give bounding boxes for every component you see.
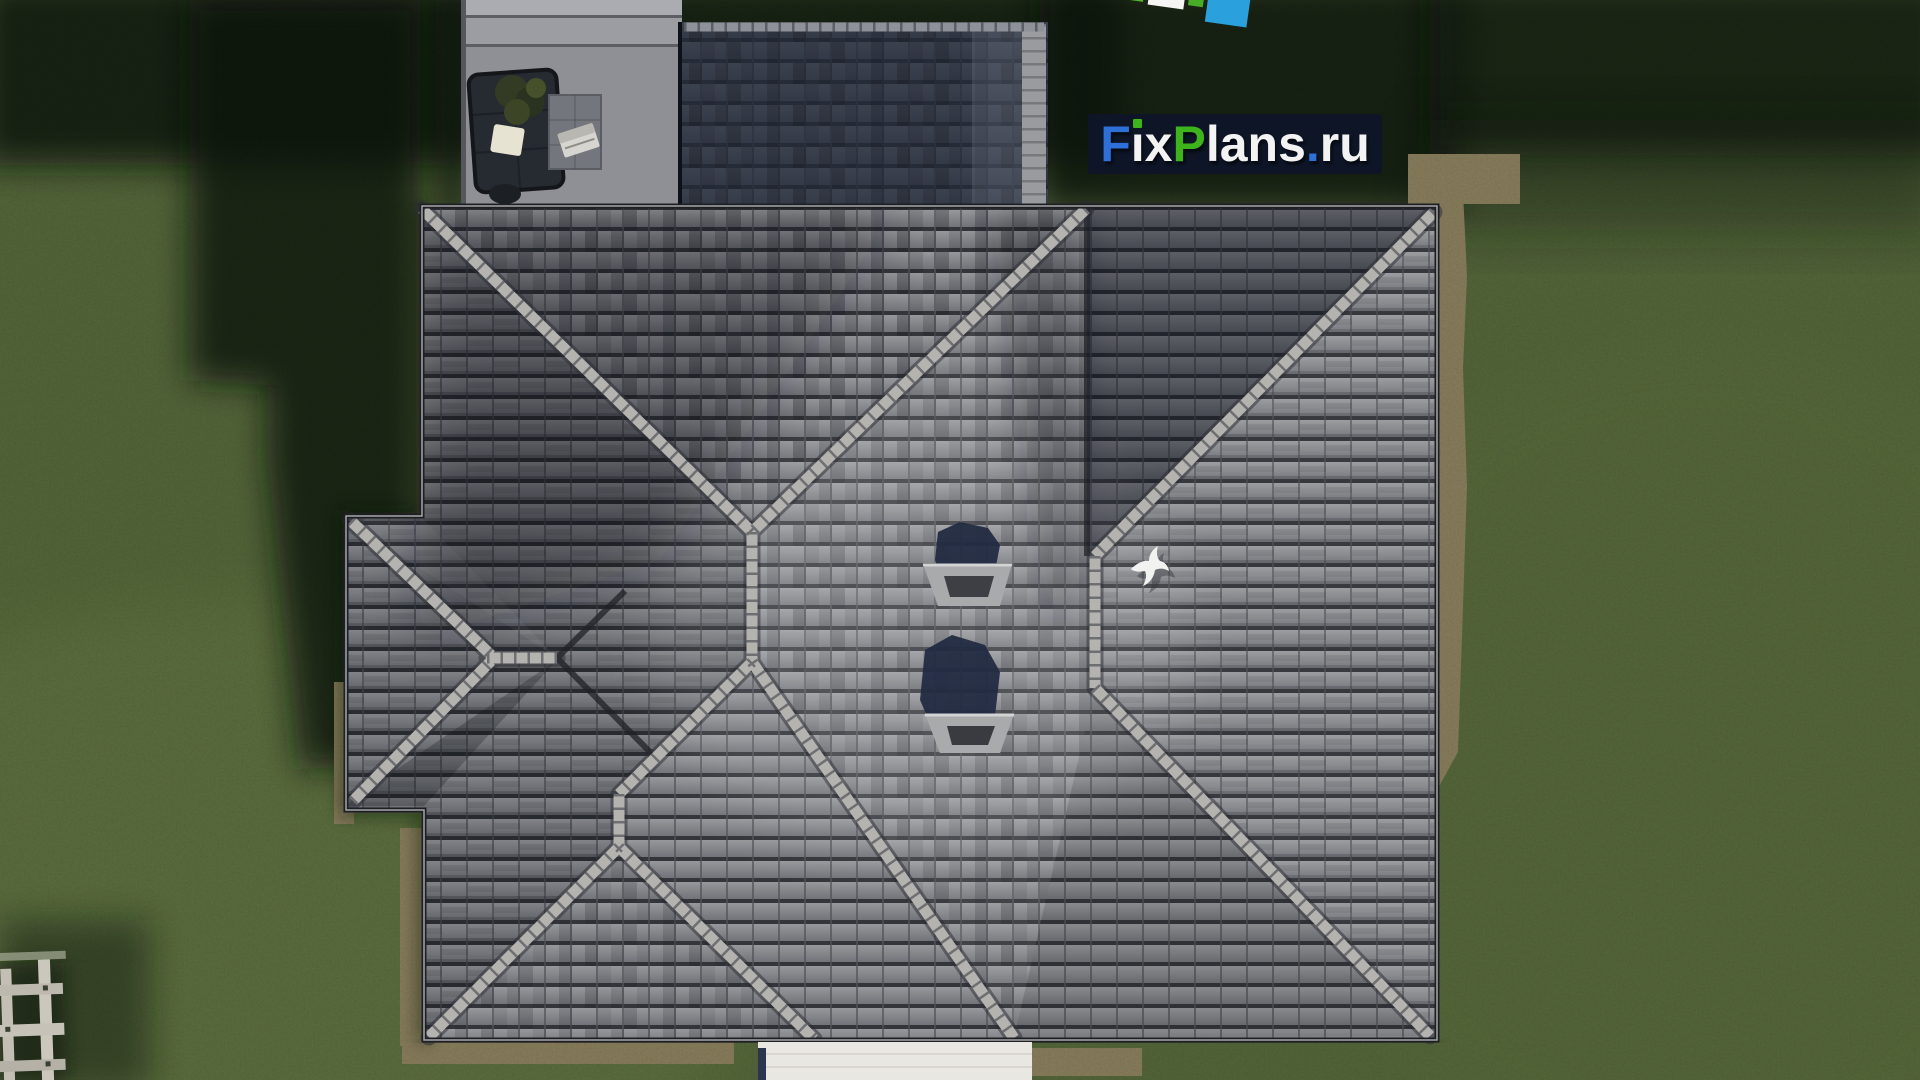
- aerial-house-render: FıxPlans.ru: [0, 0, 1920, 1080]
- pergola-bolt-3: [45, 1061, 50, 1066]
- white-walkway: [758, 1042, 1032, 1080]
- patio-step-1: [466, 0, 682, 16]
- main-roof: [346, 206, 1437, 1042]
- green-dot-icon: [1133, 119, 1142, 128]
- watermark-letter-i: ı: [1131, 114, 1145, 174]
- garage-lighter-columns: [972, 22, 1022, 204]
- patio-step-edge-1: [466, 15, 682, 18]
- patio-step-edge-2: [466, 44, 682, 47]
- ottoman: [489, 184, 521, 204]
- pergola-bolt-1: [43, 985, 48, 990]
- watermark-letter: .: [1306, 114, 1320, 174]
- watermark-logo: FıxPlans.ru: [1088, 114, 1382, 174]
- watermark-letter: x: [1145, 114, 1173, 174]
- roof-sunlit-patch: [650, 420, 1190, 860]
- walkway-slab: [758, 1042, 1032, 1080]
- garage-left-edge: [678, 22, 682, 204]
- watermark-letter: ru: [1320, 114, 1370, 174]
- watermark-letter: lans: [1206, 114, 1306, 174]
- sofa-cushion: [490, 124, 525, 157]
- pergola: [0, 951, 70, 1080]
- patio-step-2: [466, 16, 682, 46]
- walkway-navy-edge: [758, 1048, 766, 1080]
- watermark-letter: F: [1100, 114, 1131, 174]
- render-canvas: [0, 0, 1920, 1080]
- patio-left-border: [461, 0, 466, 204]
- garage-roof: [678, 22, 1048, 204]
- watermark-letter: P: [1172, 114, 1205, 174]
- skylight-1-glass: [944, 576, 994, 597]
- patio-terrace: [461, 0, 682, 204]
- pergola-bolt-2: [5, 1027, 10, 1032]
- skylight-2-glass: [947, 726, 995, 745]
